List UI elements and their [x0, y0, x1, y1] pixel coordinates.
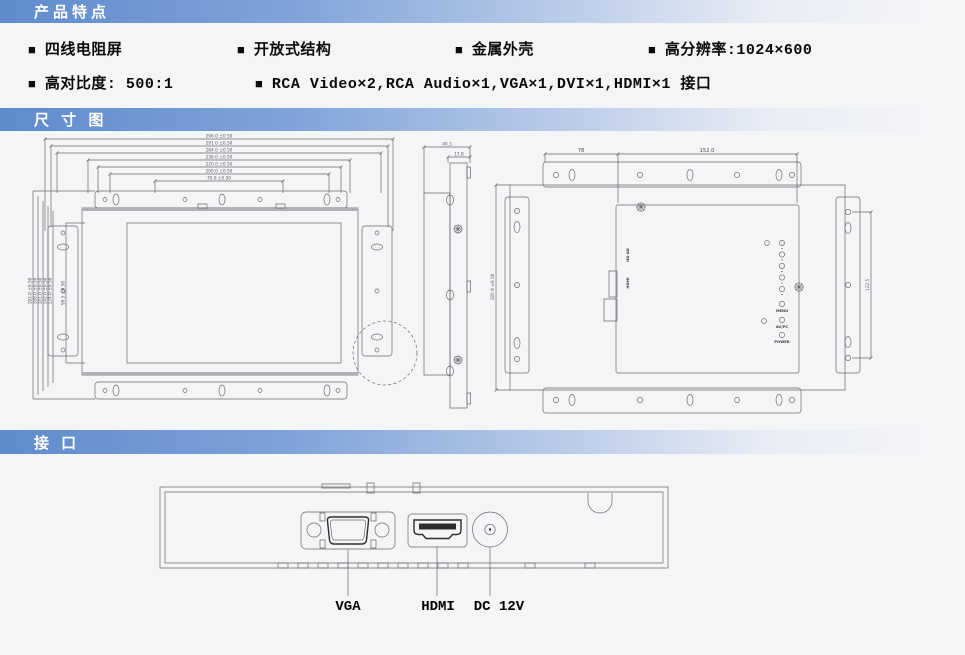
dim-label: 78 [578, 148, 585, 154]
feature-item: ■高分辨率:1024×600 [648, 38, 812, 59]
feature-label: RCA Video×2,RCA Audio×1,VGA×1,DVI×1,HDMI… [272, 76, 712, 93]
section-title-interface: 接 口 [34, 432, 80, 453]
detail-callout-circle [353, 321, 417, 385]
dim-label: 17.8 [454, 151, 464, 157]
feature-label: 金属外壳 [472, 42, 534, 59]
led-indicator [765, 241, 770, 246]
feature-label: 四线电阻屏 [45, 42, 123, 59]
feature-item: ■金属外壳 [455, 38, 534, 59]
dim-label: 122.5 [865, 279, 871, 292]
square-bullet-icon: ■ [28, 43, 36, 58]
dim-label: 40.3 [442, 141, 452, 147]
hdmi-port-label: HDMI [421, 599, 455, 615]
section-title-features: 产品特点 [34, 1, 110, 22]
feature-item: ■开放式结构 [237, 38, 331, 59]
avpc-button-label: AV/PC [776, 325, 789, 329]
menu-button-label: MENU [776, 309, 788, 313]
product-datasheet-page: 产品特点 ■四线电阻屏 ■开放式结构 ■金属外壳 ■高分辨率:1024×600 … [0, 0, 965, 655]
dim-label: 124.0 ±0.50 [48, 277, 54, 304]
section-banner-dimensions: 尺 寸 图 [0, 108, 965, 131]
rear-hdmi-label: HDMI [626, 277, 630, 289]
section-banner-features: 产品特点 [0, 0, 965, 23]
dimension-diagram: 296.0 ±0.50 291.0 ±0.50 284.0 ±0.50 236.… [0, 131, 965, 427]
dim-label: 185.9 ±0.50 [490, 273, 496, 300]
vga-connector [301, 512, 395, 549]
section-title-dimensions: 尺 寸 图 [34, 109, 107, 130]
square-bullet-icon: ■ [455, 43, 463, 58]
feature-item: ■高对比度: 500:1 [28, 72, 173, 93]
rear-view-drawing: 78 152.0 185.9 ±0.50 122.5 [490, 148, 873, 413]
front-view-drawing: 296.0 ±0.50 291.0 ±0.50 284.0 ±0.50 236.… [28, 134, 417, 399]
dc-jack [473, 512, 508, 547]
interface-panel-drawing: VGA HDMI DC 12V [160, 483, 668, 615]
section-banner-interface: 接 口 [0, 430, 965, 454]
square-bullet-icon: ■ [648, 43, 656, 58]
dim-label: 200.0 ±0.50 [206, 169, 233, 175]
panel-notch [588, 493, 612, 513]
rear-board-label: HD-AD [626, 248, 630, 262]
dim-label: 220.0 ±0.50 [206, 162, 233, 168]
side-view-drawing: 40.3 17.8 [422, 141, 471, 408]
square-bullet-icon: ■ [237, 43, 245, 58]
dim-label: 284.0 ±0.50 [206, 148, 233, 154]
feature-label: 高对比度: 500:1 [45, 76, 174, 93]
feature-item: ■RCA Video×2,RCA Audio×1,VGA×1,DVI×1,HDM… [255, 72, 711, 93]
feature-label: 开放式结构 [254, 42, 332, 59]
power-button-label: POWER [774, 340, 789, 344]
dim-label: 70.0 ±0.50 [207, 176, 231, 182]
dim-label: 296.0 ±0.50 [206, 134, 233, 140]
square-bullet-icon: ■ [28, 77, 36, 92]
feature-label: 高分辨率:1024×600 [665, 42, 813, 59]
square-bullet-icon: ■ [255, 77, 263, 92]
dim-label: 152.0 [700, 148, 715, 154]
interface-diagram: VGA HDMI DC 12V [0, 460, 965, 655]
feature-item: ■四线电阻屏 [28, 38, 122, 59]
vga-port-label: VGA [335, 599, 361, 615]
dim-label: 236.0 ±0.50 [206, 155, 233, 161]
led-indicator [762, 319, 767, 324]
dim-label: 291.0 ±0.50 [206, 141, 233, 147]
hdmi-connector [408, 514, 467, 547]
dc-port-label: DC 12V [474, 599, 525, 615]
